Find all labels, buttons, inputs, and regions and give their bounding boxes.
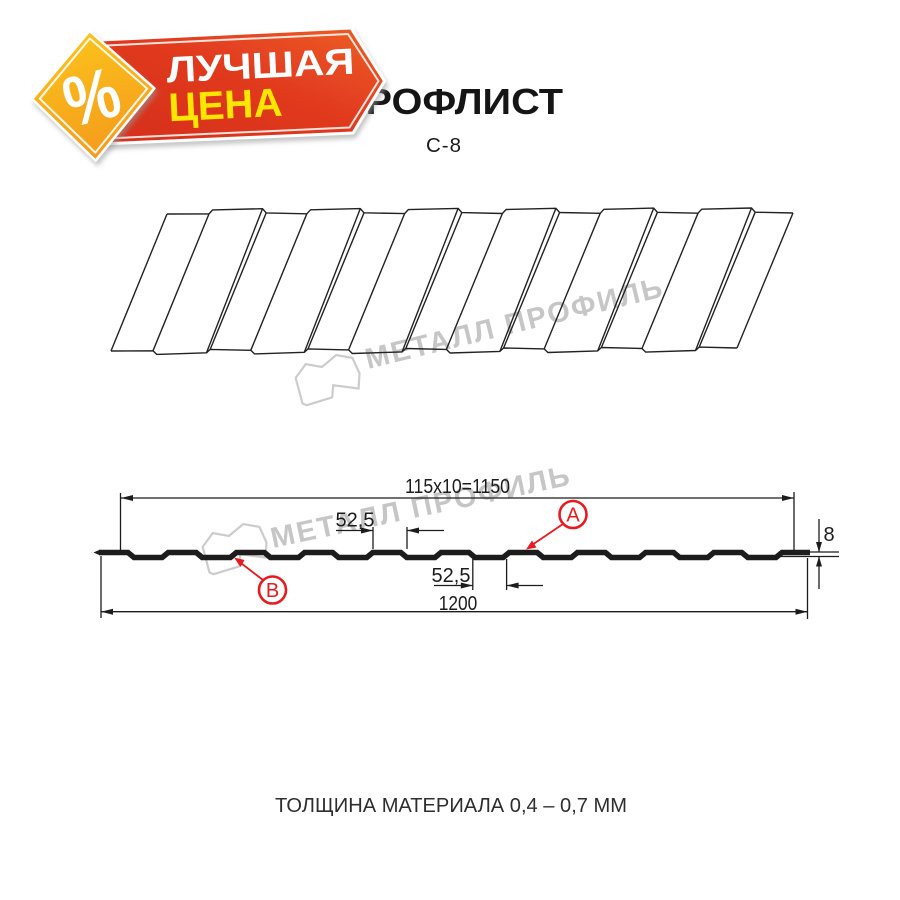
svg-text:115x10=1150: 115x10=1150	[405, 475, 510, 498]
svg-text:А: А	[566, 505, 580, 527]
svg-text:52,5: 52,5	[432, 565, 471, 587]
svg-text:8: 8	[824, 524, 835, 546]
svg-text:ЦЕНА: ЦЕНА	[167, 81, 283, 131]
svg-text:В: В	[266, 580, 279, 602]
svg-text:С-8: С-8	[426, 134, 462, 157]
svg-text:ТОЛЩИНА МАТЕРИАЛА 0,4 – 0,7 ММ: ТОЛЩИНА МАТЕРИАЛА 0,4 – 0,7 ММ	[275, 794, 627, 817]
svg-text:1200: 1200	[439, 593, 478, 615]
svg-text:52,5: 52,5	[336, 510, 375, 532]
